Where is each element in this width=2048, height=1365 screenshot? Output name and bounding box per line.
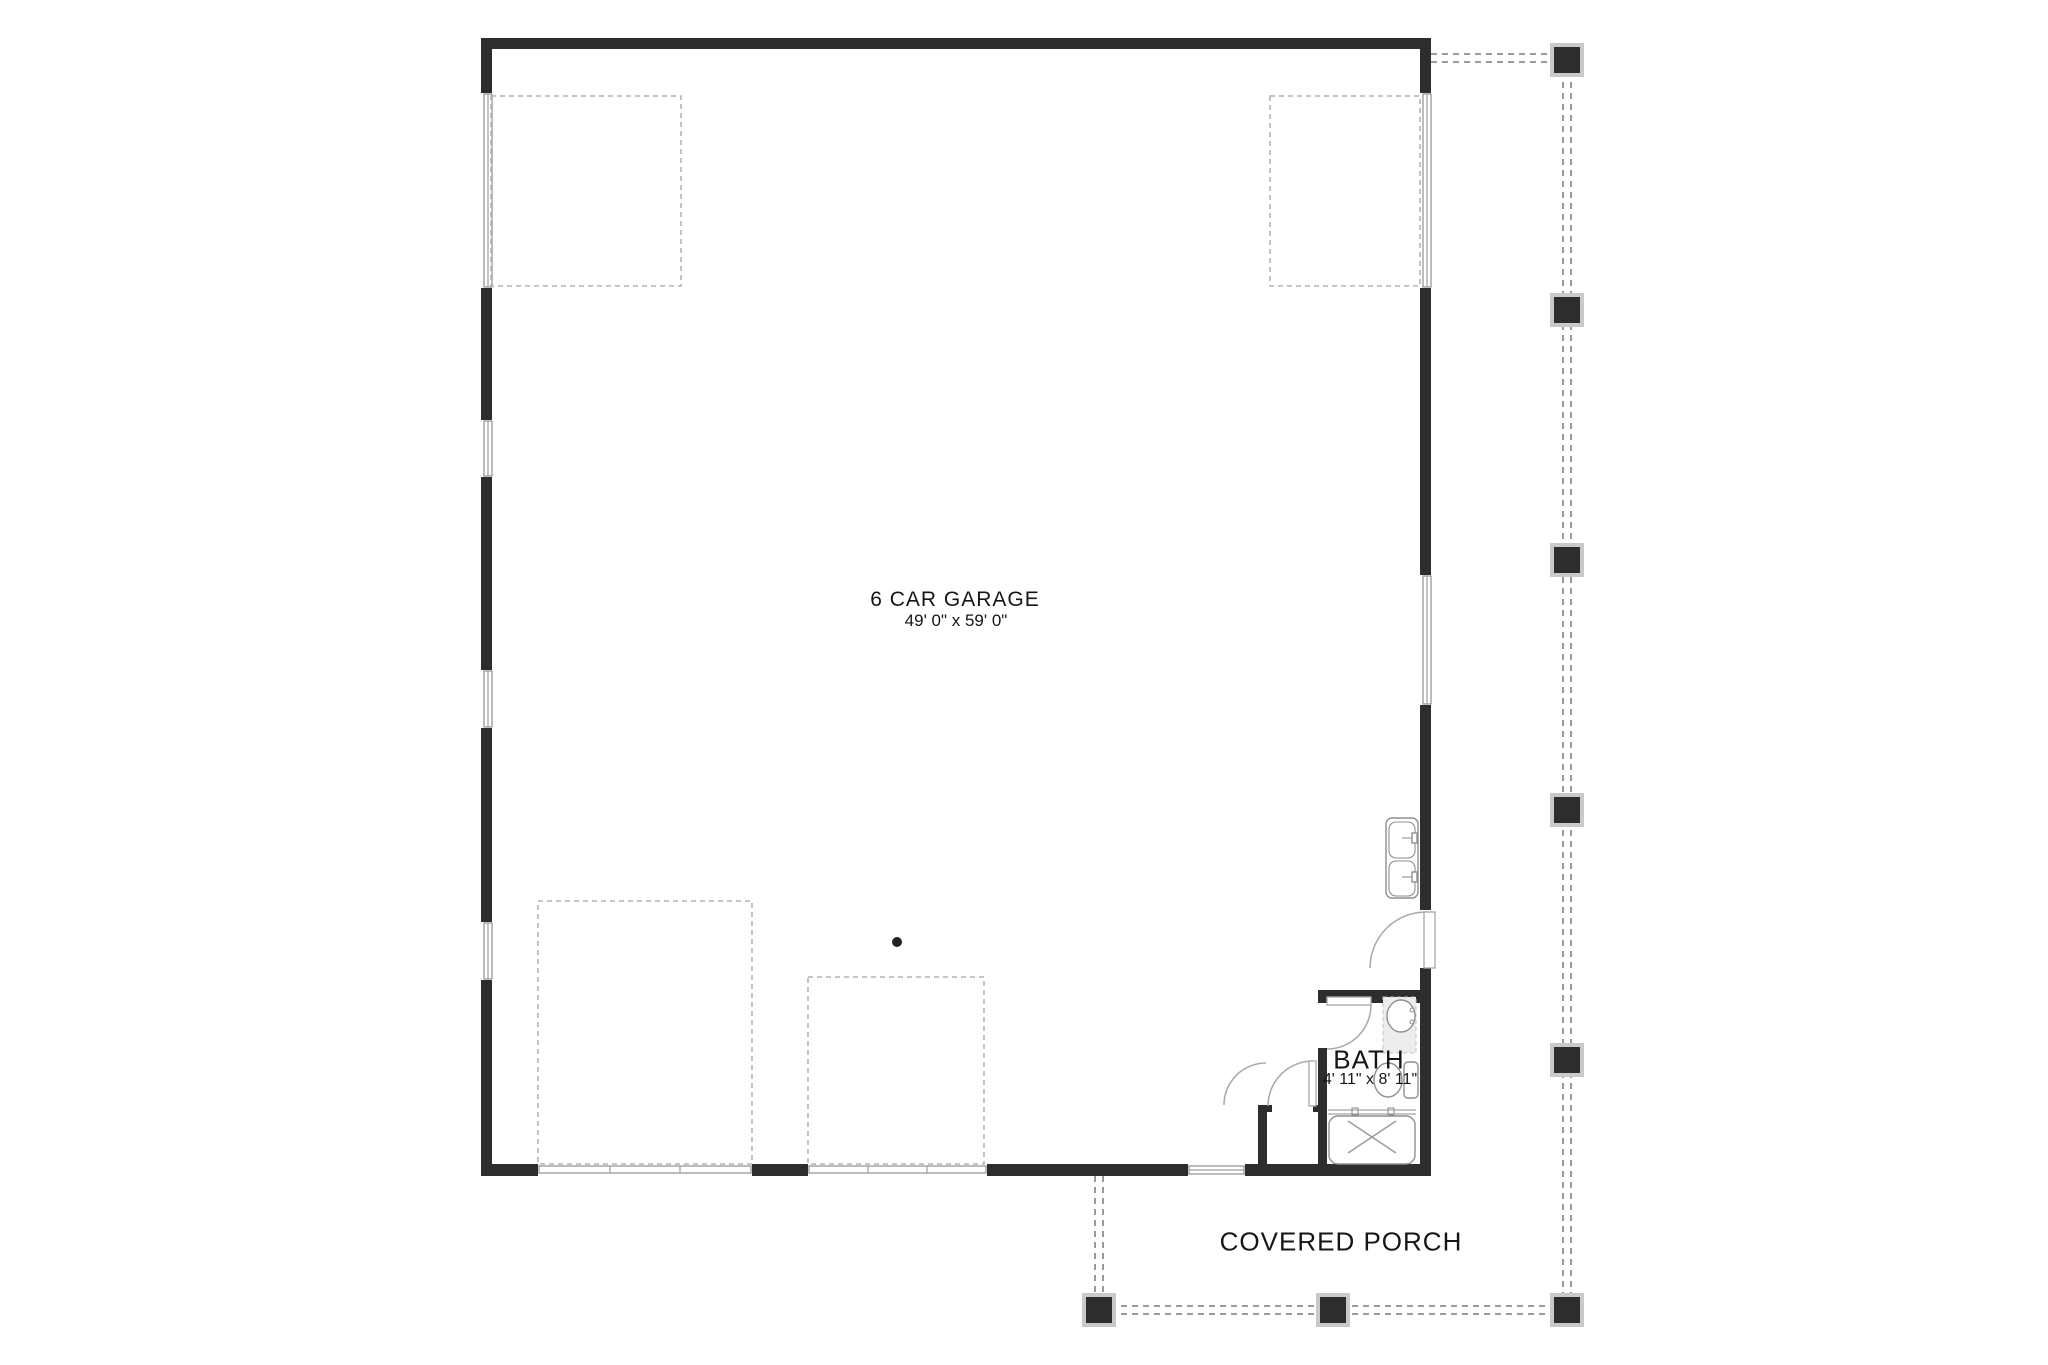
garage-room-label: 6 CAR GARAGE (870, 588, 1040, 612)
closet-wall-cap (1258, 1105, 1272, 1112)
ext-door-right-swing (1370, 912, 1426, 968)
porch-post-right-2 (1552, 295, 1582, 325)
column-dot (892, 937, 902, 947)
wall-left-seg1 (481, 38, 492, 93)
garage-door-1-panel (539, 1166, 751, 1173)
porch-post-right-1 (1552, 45, 1582, 75)
clearance-box-door-1 (538, 901, 752, 1164)
bath-wall-left (1318, 1048, 1327, 1164)
wall-left-seg2 (481, 288, 492, 420)
garage-door-2-panel (809, 1166, 986, 1173)
shower-tray (1329, 1116, 1415, 1164)
wall-bottom-seg2 (752, 1164, 808, 1176)
porch-post-right-5 (1552, 1045, 1582, 1075)
floor-plan: 6 CAR GARAGE 49' 0" x 59' 0" BATH 4' 11"… (0, 0, 2048, 1365)
wall-right-seg3 (1420, 705, 1431, 910)
clearance-box-top-left (491, 96, 681, 286)
ext-door-right-leaf (1424, 912, 1435, 968)
bath-sink (1387, 1000, 1415, 1032)
utility-sink-faucet-2 (1412, 872, 1417, 882)
closet-door-left-swing (1224, 1063, 1266, 1105)
wall-bottom-seg3 (987, 1164, 1188, 1176)
closet-door-right-leaf (1309, 1061, 1316, 1106)
porch-post-right-4 (1552, 795, 1582, 825)
bath-door-leaf (1327, 997, 1371, 1005)
openings (484, 94, 1431, 1174)
garage-room-dimensions: 49' 0" x 59' 0" (905, 611, 1008, 631)
wall-right-seg4 (1420, 968, 1431, 1176)
porch-label: COVERED PORCH (1220, 1227, 1463, 1258)
wall-bottom-seg1 (481, 1164, 538, 1176)
wall-left-seg5 (481, 980, 492, 1176)
clearance-box-door-2 (808, 977, 984, 1164)
wall-left-seg3 (481, 477, 492, 670)
closet-wall-stub (1258, 1105, 1267, 1164)
porch-post-bottom-left (1084, 1295, 1114, 1325)
porch-post-right-3 (1552, 545, 1582, 575)
bath-room-dimensions: 4' 11" x 8' 11" (1323, 1071, 1417, 1089)
clearance-box-top-right (1270, 96, 1420, 286)
wall-left-seg4 (481, 728, 492, 922)
closet-door-right-swing (1268, 1061, 1313, 1106)
utility-sink-faucet-1 (1412, 833, 1417, 843)
porch-post-corner (1552, 1295, 1582, 1325)
wall-right-seg1 (1420, 38, 1431, 93)
bath-door-swing (1327, 1005, 1371, 1049)
wall-right-seg2 (1420, 288, 1431, 575)
porch-post-bottom-mid (1318, 1295, 1348, 1325)
wall-top (481, 38, 1431, 49)
floor-plan-drawing (0, 0, 2048, 1365)
wall-bottom-seg4 (1245, 1164, 1431, 1176)
